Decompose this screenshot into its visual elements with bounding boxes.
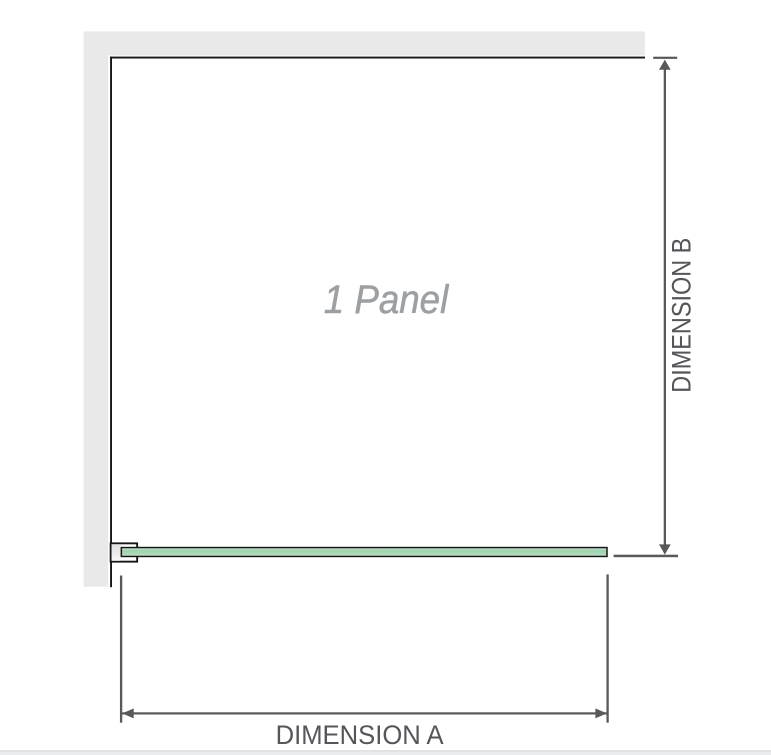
svg-text:DIMENSION B: DIMENSION B [667, 238, 697, 393]
svg-text:DIMENSION A: DIMENSION A [276, 720, 444, 750]
svg-text:1 Panel: 1 Panel [324, 278, 450, 322]
